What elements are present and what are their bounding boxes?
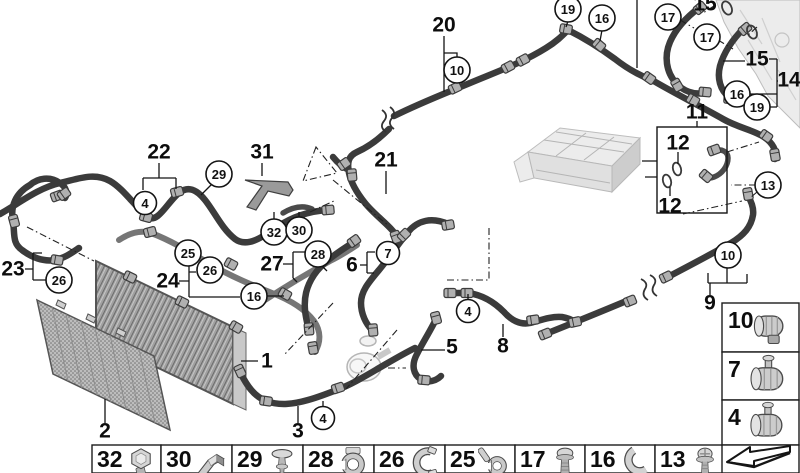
legend-cell-17[interactable]: 17 (515, 445, 585, 473)
balloon-number: 10 (450, 63, 464, 78)
balloon-number: 10 (721, 248, 735, 263)
balloon-number: 28 (311, 247, 325, 262)
legend-right-column: 10 7 4 (722, 303, 799, 473)
balloon-number: 16 (730, 87, 744, 102)
part-number-label-22: 22 (147, 141, 170, 164)
parts-diagram-page: 32 30 29 28 26 25 17 (0, 0, 800, 473)
legend-part-number: 7 (728, 356, 741, 382)
balloon-number: 16 (595, 11, 609, 26)
legend-cell-28[interactable]: 28 (303, 445, 374, 473)
balloon-number: 7 (384, 246, 391, 261)
part-number-label-31: 31 (250, 141, 274, 164)
balloon-number: 25 (181, 246, 195, 261)
part-number-label-11: 11 (686, 101, 709, 124)
legend-part-number: 32 (97, 446, 123, 472)
legend-part-number: 16 (590, 446, 616, 472)
legend-part-number: 4 (728, 404, 741, 430)
balloon-number: 29 (212, 167, 226, 182)
balloon-number: 13 (761, 178, 775, 193)
balloon-number: 19 (561, 2, 575, 17)
part-number-label-14: 14 (777, 69, 800, 92)
part-number-label-12: 12 (658, 195, 681, 218)
balloon-number: 19 (750, 100, 764, 115)
part-number-label-24: 24 (156, 270, 180, 293)
balloon-number: 17 (700, 30, 714, 45)
legend-cell-4[interactable]: 4 (722, 400, 799, 445)
legend-cell-7[interactable]: 7 (722, 352, 799, 400)
legend-part-number: 29 (237, 446, 263, 472)
part-number-label-27: 27 (260, 253, 283, 276)
part-number-label-1: 1 (261, 350, 273, 373)
legend-cell-29[interactable]: 29 (232, 445, 303, 473)
balloon-number: 26 (52, 273, 66, 288)
balloon-number: 4 (319, 411, 327, 426)
legend-part-number: 13 (660, 446, 686, 472)
legend-part-number: 25 (450, 446, 476, 472)
part-number-label-6: 6 (346, 254, 358, 277)
part-number-label-15: 15 (693, 0, 717, 16)
power-electronics-unit (514, 128, 640, 192)
part-number-label-23: 23 (1, 258, 24, 281)
part-number-label-5: 5 (446, 336, 458, 359)
legend-bottom-strip: 32 30 29 28 26 25 17 (92, 445, 723, 473)
part-number-label-3: 3 (292, 420, 304, 443)
balloon-number: 30 (292, 223, 306, 238)
legend-cell-13[interactable]: 13 (655, 445, 723, 473)
balloon-number: 16 (247, 289, 261, 304)
legend-part-number: 28 (308, 446, 334, 472)
part-number-label-12: 12 (666, 132, 689, 155)
legend-cell-32[interactable]: 32 (92, 445, 161, 473)
page-turn-arrow-cell[interactable] (722, 445, 799, 473)
balloon-number: 4 (141, 196, 149, 211)
legend-part-number: 30 (166, 446, 192, 472)
legend-part-number: 17 (520, 446, 546, 472)
part-number-label-8: 8 (497, 335, 509, 358)
balloon-number: 26 (203, 263, 217, 278)
balloon-number: 4 (464, 304, 472, 319)
part-number-label-9: 9 (704, 292, 716, 315)
part-number-label-20: 20 (432, 14, 455, 37)
legend-cell-16[interactable]: 16 (585, 445, 655, 473)
legend-part-number: 26 (379, 446, 405, 472)
legend-part-number: 10 (728, 307, 754, 333)
cooling-hoses-parts-diagram: 32 30 29 28 26 25 17 (0, 0, 800, 473)
bracket-part-31 (245, 180, 293, 210)
legend-cell-26[interactable]: 26 (374, 445, 445, 473)
legend-cell-30[interactable]: 30 (161, 445, 232, 473)
part-number-label-21: 21 (374, 149, 398, 172)
part-number-label-2: 2 (99, 420, 111, 443)
balloon-number: 17 (661, 10, 675, 25)
legend-cell-10[interactable]: 10 (722, 303, 799, 352)
part-number-label-15: 15 (745, 48, 769, 71)
legend-cell-25[interactable]: 25 (445, 445, 515, 473)
balloon-number: 32 (267, 225, 281, 240)
